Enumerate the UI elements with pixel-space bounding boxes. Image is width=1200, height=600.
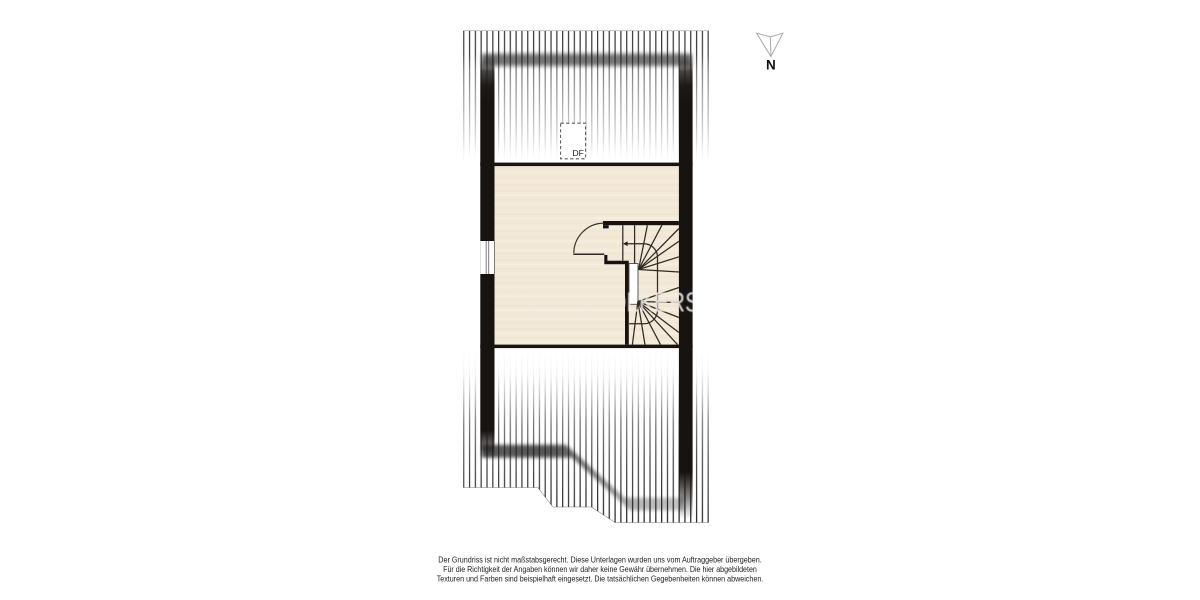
svg-text:Texturen und Farben sind beisp: Texturen und Farben sind beispielhaft ei…: [437, 573, 764, 583]
svg-text:N: N: [766, 58, 776, 73]
svg-text:DF: DF: [573, 148, 584, 158]
svg-text:ENGEL&VÖLKERS: ENGEL&VÖLKERS: [503, 287, 700, 318]
